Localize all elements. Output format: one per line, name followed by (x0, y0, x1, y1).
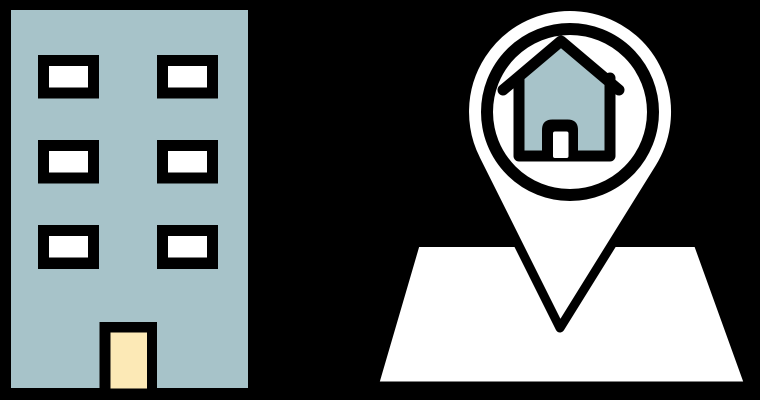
building-window (157, 225, 218, 269)
building-window (38, 225, 99, 269)
building-door (100, 322, 158, 389)
building-window (157, 140, 218, 184)
window-pane (168, 66, 207, 88)
window-pane (49, 151, 88, 173)
building-window (38, 55, 99, 99)
building-window (157, 55, 218, 99)
window-pane (168, 151, 207, 173)
window-pane (49, 236, 88, 258)
building-icon (0, 10, 258, 396)
illustration-canvas (0, 0, 760, 400)
building-window (38, 140, 99, 184)
window-pane (168, 236, 207, 258)
building-baseline (0, 388, 258, 396)
icons-illustration (0, 0, 760, 400)
window-pane (49, 66, 88, 88)
door-panel (111, 333, 148, 389)
house-door-pane (553, 132, 569, 159)
